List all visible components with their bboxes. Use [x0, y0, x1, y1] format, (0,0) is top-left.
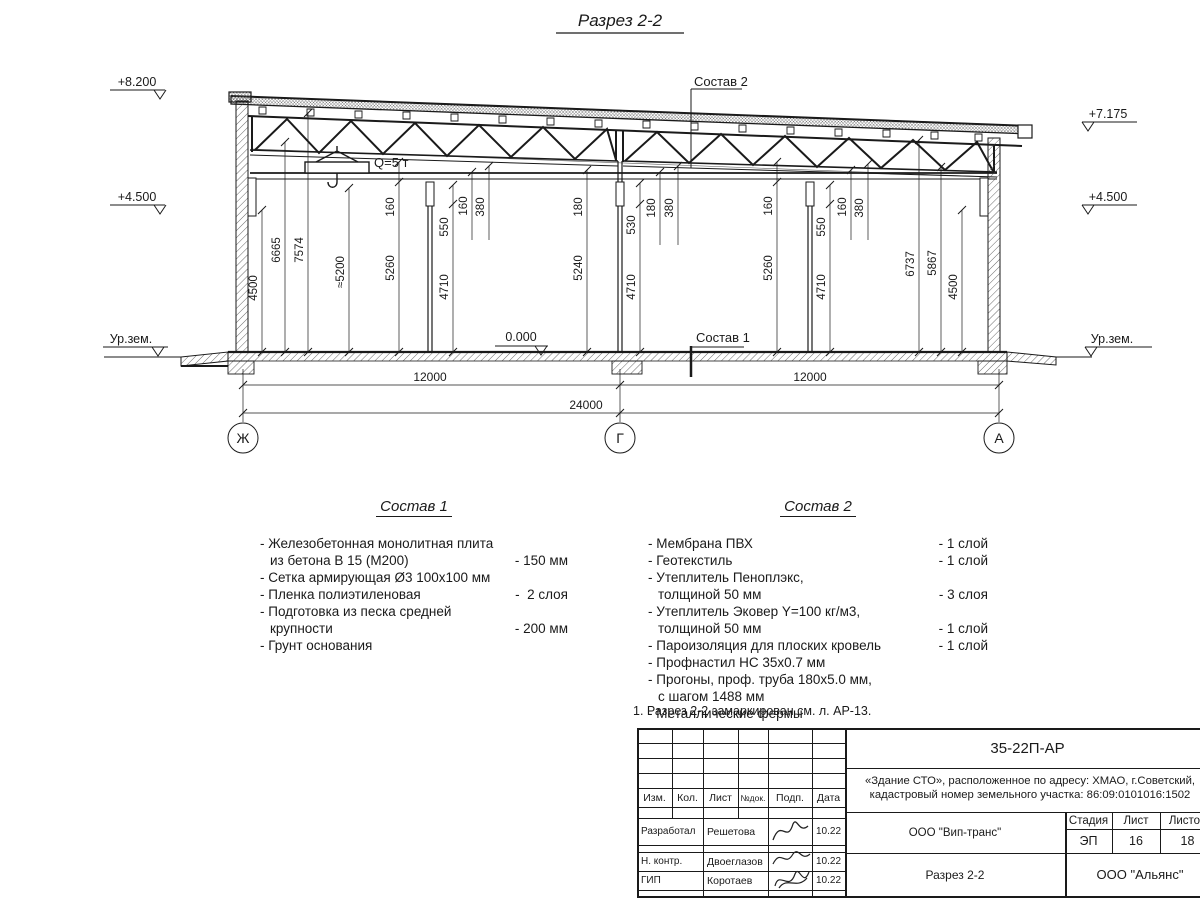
- title-block: Изм. Кол. Лист №док. Подп. Дата Разработ…: [637, 728, 1200, 898]
- stamp-col-ndok: №док.: [738, 788, 768, 807]
- list-item: - Сетка армирующая Ø3 100х100 мм: [260, 569, 568, 586]
- list-item: - Пленка полиэтиленовая - 2 слоя: [260, 586, 568, 603]
- stamp-sheets-label: Листов: [1160, 812, 1200, 829]
- foundation-left: [228, 361, 254, 374]
- dim-label: 180: [646, 198, 658, 217]
- stamp-object: «Здание СТО», расположенное по адресу: Х…: [849, 774, 1200, 802]
- dim-label: 7574: [294, 237, 306, 263]
- list-item: - Пароизоляция для плоских кровель - 1 с…: [648, 637, 988, 654]
- list-item: - Мембрана ПВХ - 1 слой: [648, 535, 988, 552]
- span-dim-right: 12000: [793, 370, 827, 384]
- list-item: - Утеплитель Пеноплэкс, толщиной 50 мм -…: [648, 569, 988, 603]
- elevation-value: +4.500: [1089, 190, 1128, 204]
- elevation-value: +8.200: [118, 75, 157, 89]
- signature-ncontrol-gip: [769, 848, 813, 894]
- floor-slab: [228, 352, 1007, 361]
- stamp-object-line2: кадастровый номер земельного участка: 86…: [849, 788, 1200, 802]
- stamp-date-gip: 10.22: [812, 871, 845, 890]
- list-item: - Геотекстиль - 1 слой: [648, 552, 988, 569]
- item-text: - Мембрана ПВХ: [648, 535, 988, 552]
- dim-label: ≈5200: [335, 256, 347, 288]
- stamp-stage-value: ЭП: [1065, 829, 1112, 853]
- roof-deck: [231, 96, 1030, 134]
- dim-label: 4500: [248, 275, 260, 301]
- dim-label: 550: [816, 217, 828, 236]
- item-value: - 1 слой: [939, 620, 988, 637]
- dim-label: 5867: [927, 250, 939, 276]
- stamp-section-title: Разрез 2-2: [845, 853, 1065, 896]
- left-wall: [236, 101, 248, 352]
- item-value: - 3 слоя: [939, 586, 988, 603]
- bottom-dimensions: [243, 369, 999, 422]
- dim-label: 380: [854, 198, 866, 217]
- foundation-center: [612, 361, 642, 374]
- stamp-col-data: Дата: [812, 788, 845, 807]
- stamp-col-izm: Изм.: [637, 788, 672, 807]
- right-apron: [1007, 352, 1056, 365]
- total-dim: 24000: [569, 398, 603, 412]
- list-item: - Прогоны, проф. труба 180х5.0 мм, с шаг…: [648, 671, 988, 705]
- right-pilaster: [980, 178, 988, 216]
- dim-label: 530: [626, 215, 638, 234]
- dim-label: 6665: [271, 237, 283, 263]
- stamp-date-ncontrol: 10.22: [812, 852, 845, 871]
- stamp-name-developer: Решетова: [707, 818, 767, 845]
- axis-label-g: Г: [616, 430, 624, 446]
- list-item: - Профнастил НС 35х0.7 мм: [648, 654, 988, 671]
- sostav1-list: Состав 1 - Железобетонная монолитная пли…: [260, 498, 568, 654]
- dim-label: 6737: [905, 251, 917, 277]
- span-dim-left: 12000: [413, 370, 447, 384]
- right-roof-end-cap: [1018, 125, 1032, 138]
- dim-label: 4710: [816, 274, 828, 300]
- elevation-value: +4.500: [118, 190, 157, 204]
- item-text: с шагом 1488 мм: [648, 688, 988, 705]
- foundation-right: [978, 361, 1007, 374]
- stamp-name-gip: Коротаев: [707, 871, 767, 890]
- vertical-dim-labels: 4500 6665 7574 ≈5200 160 5260 550 4710 1…: [248, 196, 960, 300]
- dim-label: 5240: [573, 255, 585, 281]
- stamp-date-developer: 10.22: [812, 818, 845, 845]
- elevation-right-top: +7.175: [1082, 107, 1137, 131]
- item-value: - 2 слоя: [515, 586, 568, 603]
- left-pilaster: [248, 178, 256, 216]
- elevation-left-mid: +4.500: [110, 190, 166, 214]
- truss1-web: [255, 119, 616, 160]
- item-text: толщиной 50 мм: [648, 620, 988, 637]
- sostav2-list: Состав 2 - Мембрана ПВХ - 1 слой - Геоте…: [648, 498, 988, 722]
- stamp-stage-label: Стадия: [1065, 812, 1112, 829]
- column-3: [806, 182, 814, 352]
- item-text: - Сетка армирующая Ø3 100х100 мм: [260, 569, 568, 586]
- hoist-capacity-label: Q=5 т: [374, 155, 409, 170]
- item-text: - Пароизоляция для плоских кровель: [648, 637, 988, 654]
- elevation-value: Ур.зем.: [1091, 332, 1133, 346]
- right-wall: [988, 138, 1000, 352]
- dim-label: 160: [458, 196, 470, 215]
- item-text: - Грунт основания: [260, 637, 568, 654]
- column-2: [616, 161, 624, 352]
- item-text: толщиной 50 мм: [648, 586, 988, 603]
- elevation-value: +7.175: [1089, 107, 1128, 121]
- dim-label: 550: [439, 217, 451, 236]
- sostav1-title: Состав 1: [260, 498, 568, 515]
- drawing-sheet: { "title": "Разрез 2-2", "drawing": { "e…: [0, 0, 1200, 900]
- dim-label: 380: [475, 197, 487, 216]
- dim-label: 380: [664, 198, 676, 217]
- ground-level-left: Ур.зем.: [103, 332, 168, 356]
- item-value: - 1 слой: [939, 637, 988, 654]
- stamp-sheet-label: Лист: [1112, 812, 1160, 829]
- sostav2-title: Состав 2: [648, 498, 988, 515]
- sostav1-callout-label: Состав 1: [696, 330, 750, 345]
- dim-label: 180: [573, 197, 585, 216]
- item-text: - Утеплитель Пеноплэкс,: [648, 569, 988, 586]
- list-item: - Грунт основания: [260, 637, 568, 654]
- stamp-doc-number: 35-22П-АР: [845, 728, 1200, 768]
- item-value: - 200 мм: [515, 620, 568, 637]
- bottom-dim-ticks: [239, 381, 1003, 417]
- stamp-role-developer: Разработал: [641, 818, 703, 845]
- elevation-right-mid: +4.500: [1082, 190, 1137, 214]
- stamp-object-line1: «Здание СТО», расположенное по адресу: Х…: [849, 774, 1200, 788]
- sheet-note: 1. Разрез 2-2 замаркирован см. л. АР-13.: [633, 704, 871, 718]
- signature-developer: [769, 816, 811, 846]
- stamp-role-ncontrol: Н. контр.: [641, 852, 703, 871]
- list-item: - Подготовка из песка средней крупности …: [260, 603, 568, 637]
- stamp-company: ООО "Вип-транс": [845, 812, 1065, 853]
- section-drawing: Разрез 2-2 Q=5 т: [0, 0, 1200, 480]
- item-value: - 1 слой: [939, 535, 988, 552]
- elevation-value: 0.000: [505, 330, 536, 344]
- stamp-org: ООО "Альянс": [1065, 853, 1200, 896]
- elevation-left-top: +8.200: [110, 75, 166, 99]
- drawing-title: Разрез 2-2: [578, 11, 663, 30]
- stamp-col-kol: Кол.: [672, 788, 703, 807]
- item-value: - 1 слой: [939, 552, 988, 569]
- left-apron: [181, 352, 228, 366]
- dim-label: 4710: [626, 274, 638, 300]
- item-text: - Профнастил НС 35х0.7 мм: [648, 654, 988, 671]
- sostav2-callout-label: Состав 2: [694, 74, 748, 89]
- item-text: - Железобетонная монолитная плита: [260, 535, 568, 552]
- axis-label-zh: Ж: [237, 430, 250, 446]
- item-value: - 150 мм: [515, 552, 568, 569]
- item-text: - Прогоны, проф. труба 180х5.0 мм,: [648, 671, 988, 688]
- dim-label: 4710: [439, 274, 451, 300]
- ground-level-right: Ур.зем.: [1085, 332, 1152, 356]
- dim-label: 160: [837, 197, 849, 216]
- item-text: - Подготовка из песка средней: [260, 603, 568, 620]
- dim-label: 160: [763, 196, 775, 215]
- dim-label: 5260: [763, 255, 775, 281]
- stamp-name-ncontrol: Двоеглазов: [707, 852, 767, 871]
- stamp-col-podp: Подп.: [768, 788, 812, 807]
- column-1: [426, 182, 434, 352]
- truss1-bottom-chord: [250, 150, 618, 161]
- dim-label: 5260: [385, 255, 397, 281]
- stamp-col-list: Лист: [703, 788, 738, 807]
- list-item: - Утеплитель Эковер Y=100 кг/м3, толщино…: [648, 603, 988, 637]
- item-text: - Утеплитель Эковер Y=100 кг/м3,: [648, 603, 988, 620]
- dim-label: 160: [385, 197, 397, 216]
- axis-label-a: А: [994, 430, 1004, 446]
- dim-label: 4500: [948, 274, 960, 300]
- stamp-sheet-value: 16: [1112, 829, 1160, 853]
- stamp-sheets-value: 18: [1160, 829, 1200, 853]
- stamp-role-gip: ГИП: [641, 871, 703, 890]
- list-item: - Железобетонная монолитная плита из бет…: [260, 535, 568, 569]
- elevation-value: Ур.зем.: [110, 332, 152, 346]
- item-text: - Геотекстиль: [648, 552, 988, 569]
